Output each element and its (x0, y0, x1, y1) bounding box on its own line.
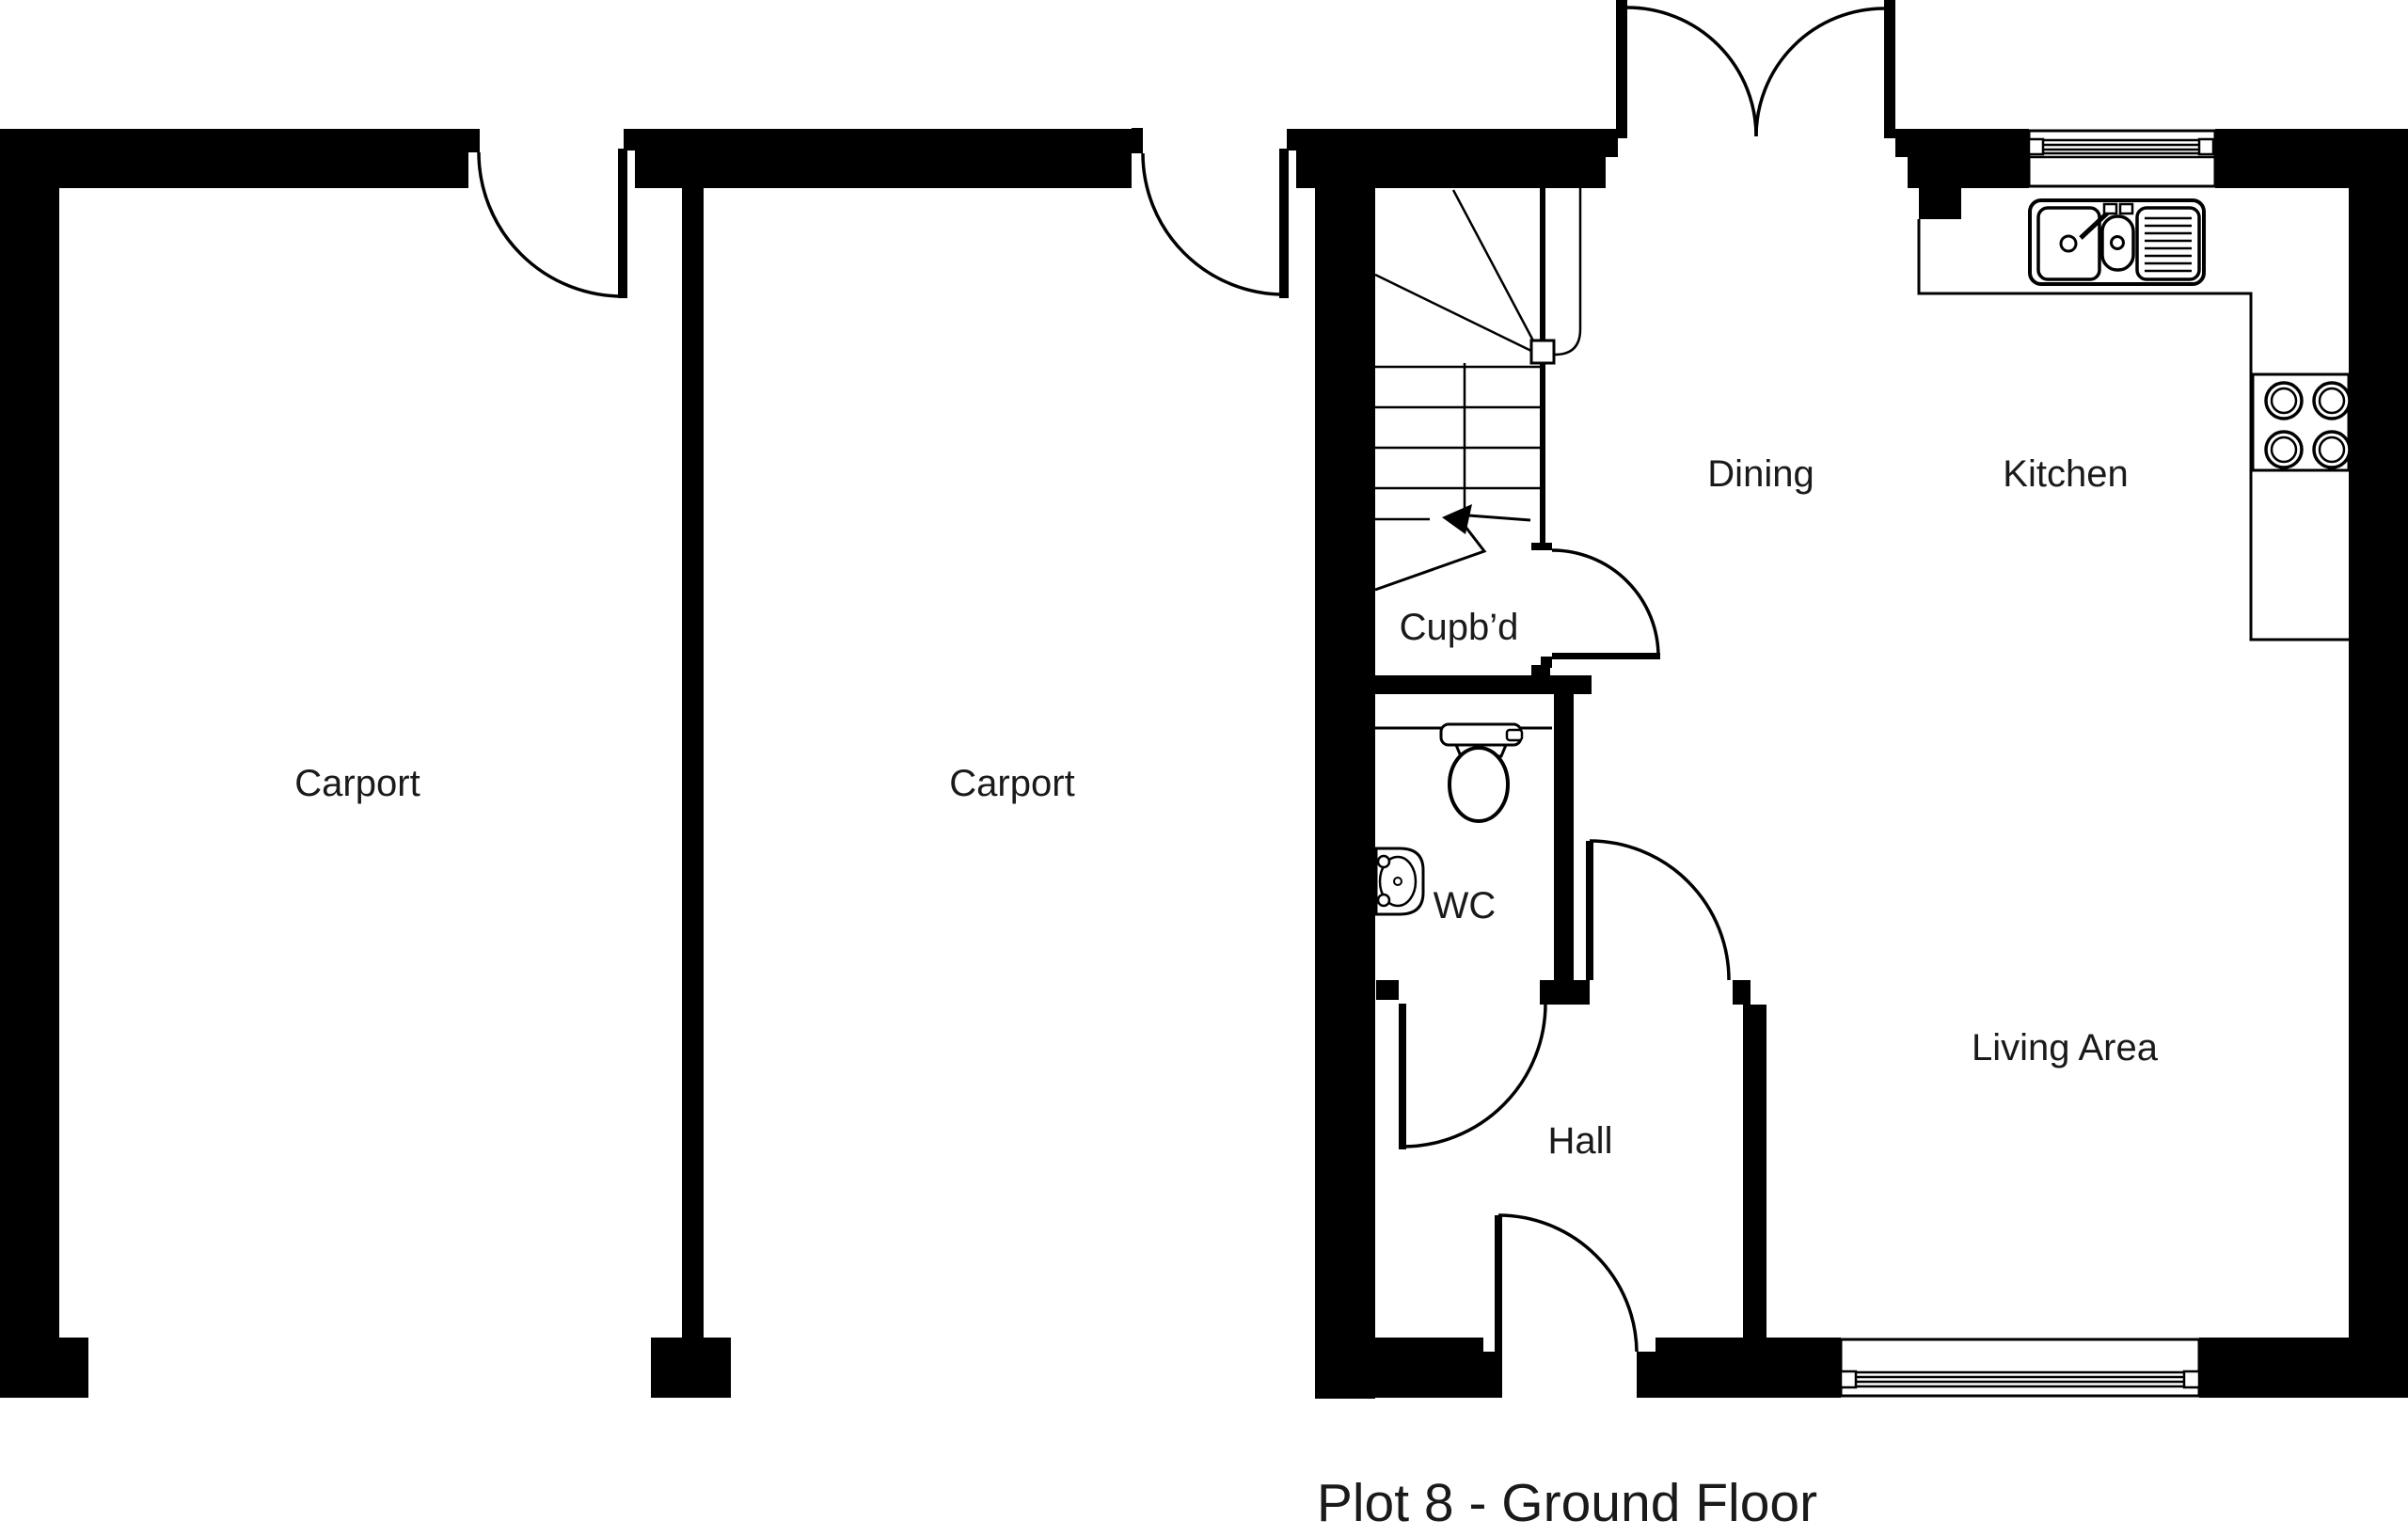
staircase (1375, 188, 1580, 590)
stair-balustrade (1555, 188, 1580, 355)
wall-jamb (1541, 657, 1552, 668)
wall-stair-side-lower (1540, 363, 1545, 543)
wall-jamb (1599, 129, 1618, 157)
plan-title: Plot 8 - Ground Floor (1317, 1473, 1817, 1533)
wall-carport-right-top (635, 129, 1132, 188)
wall-jamb (1132, 128, 1143, 153)
wall-wc-right (1554, 694, 1574, 980)
floor-plan-page: Carport Carport Dining Kitchen Cupb’d WC… (0, 0, 2408, 1536)
living-window (1841, 1339, 2199, 1396)
wall-jamb (468, 129, 480, 152)
stair-newel-post (1531, 340, 1554, 363)
wall-jamb (1376, 980, 1399, 1000)
toilet-icon (1441, 724, 1522, 821)
wall-house-left (1315, 129, 1375, 1399)
room-label-hall: Hall (1548, 1120, 1613, 1162)
wall-bottom-mid (1655, 1338, 1841, 1398)
door-leaf (1586, 841, 1593, 980)
floor-plan: Carport Carport Dining Kitchen Cupb’d WC… (0, 0, 2408, 1536)
wall-kitchen-pier (1919, 188, 1961, 219)
wall-jamb (1637, 1352, 1655, 1398)
room-label-kitchen: Kitchen (2003, 453, 2128, 495)
wall-house-right (2349, 129, 2408, 1398)
wall-bottom-right (2199, 1338, 2408, 1398)
wall-carport-left-side (0, 129, 59, 1397)
pier-carport-middle (651, 1338, 731, 1398)
room-label-dining: Dining (1707, 453, 1814, 495)
door-leaf (1552, 653, 1660, 659)
wall-carport-middle (682, 188, 704, 1338)
carport-left-door (479, 149, 627, 298)
wall-jamb (1483, 1352, 1502, 1398)
cupboard-door (1552, 550, 1660, 659)
door-leaf (618, 149, 627, 298)
door-swing-arc (479, 152, 623, 296)
door-swing-arc (1552, 550, 1658, 657)
stair-winder-line (1453, 190, 1535, 344)
wall-stair-side-upper (1540, 188, 1545, 346)
wall-jamb (1540, 980, 1590, 1005)
wall-jamb (1531, 543, 1552, 550)
wall-cupboard-wc (1375, 675, 1592, 694)
kitchen-window (2029, 131, 2215, 186)
wc-door (1399, 1004, 1545, 1149)
room-label-wc: WC (1434, 885, 1497, 926)
stair-break-arrow (1375, 515, 1530, 590)
pier-carport-left (0, 1338, 88, 1398)
wall-carport-left-top (0, 129, 468, 188)
door-swing-arc (1402, 1004, 1545, 1147)
room-label-living: Living Area (1972, 1027, 2159, 1069)
kitchen-sink-icon (2030, 200, 2204, 284)
carport-right-door (1143, 149, 1289, 298)
room-label-carport-left: Carport (294, 763, 420, 804)
stair-winder-line (1375, 275, 1533, 352)
hob-icon (2253, 374, 2350, 470)
room-label-carport-right: Carport (949, 763, 1074, 804)
wall-bottom-hall (1317, 1338, 1483, 1398)
entrance-double-door (1627, 8, 1884, 136)
door-leaf (1279, 149, 1289, 298)
door-leaf (1399, 1004, 1406, 1149)
wall-jamb (1287, 129, 1296, 150)
door-swing-arc (1143, 153, 1284, 294)
door-swing-arc (1590, 841, 1729, 980)
room-labels: Carport Carport Dining Kitchen Cupb’d WC… (294, 453, 2158, 1162)
living-room-door (1586, 841, 1729, 980)
wall-jamb (1733, 980, 1751, 1005)
room-label-cupboard: Cupb’d (1400, 607, 1519, 648)
front-door (1495, 1215, 1637, 1352)
hand-basin-icon (1376, 848, 1423, 914)
entrance-porch-left-leaf (1616, 0, 1627, 138)
wall-hall-living (1743, 1005, 1766, 1338)
wall-jamb (624, 129, 635, 150)
door-leaf (1495, 1215, 1502, 1352)
door-swing-arc (1498, 1215, 1637, 1352)
entrance-porch-right-leaf (1884, 0, 1895, 138)
door-swing-arc (1627, 8, 1756, 136)
door-swing-arc (1756, 8, 1884, 136)
wall-kitchen-top (1908, 129, 2029, 188)
